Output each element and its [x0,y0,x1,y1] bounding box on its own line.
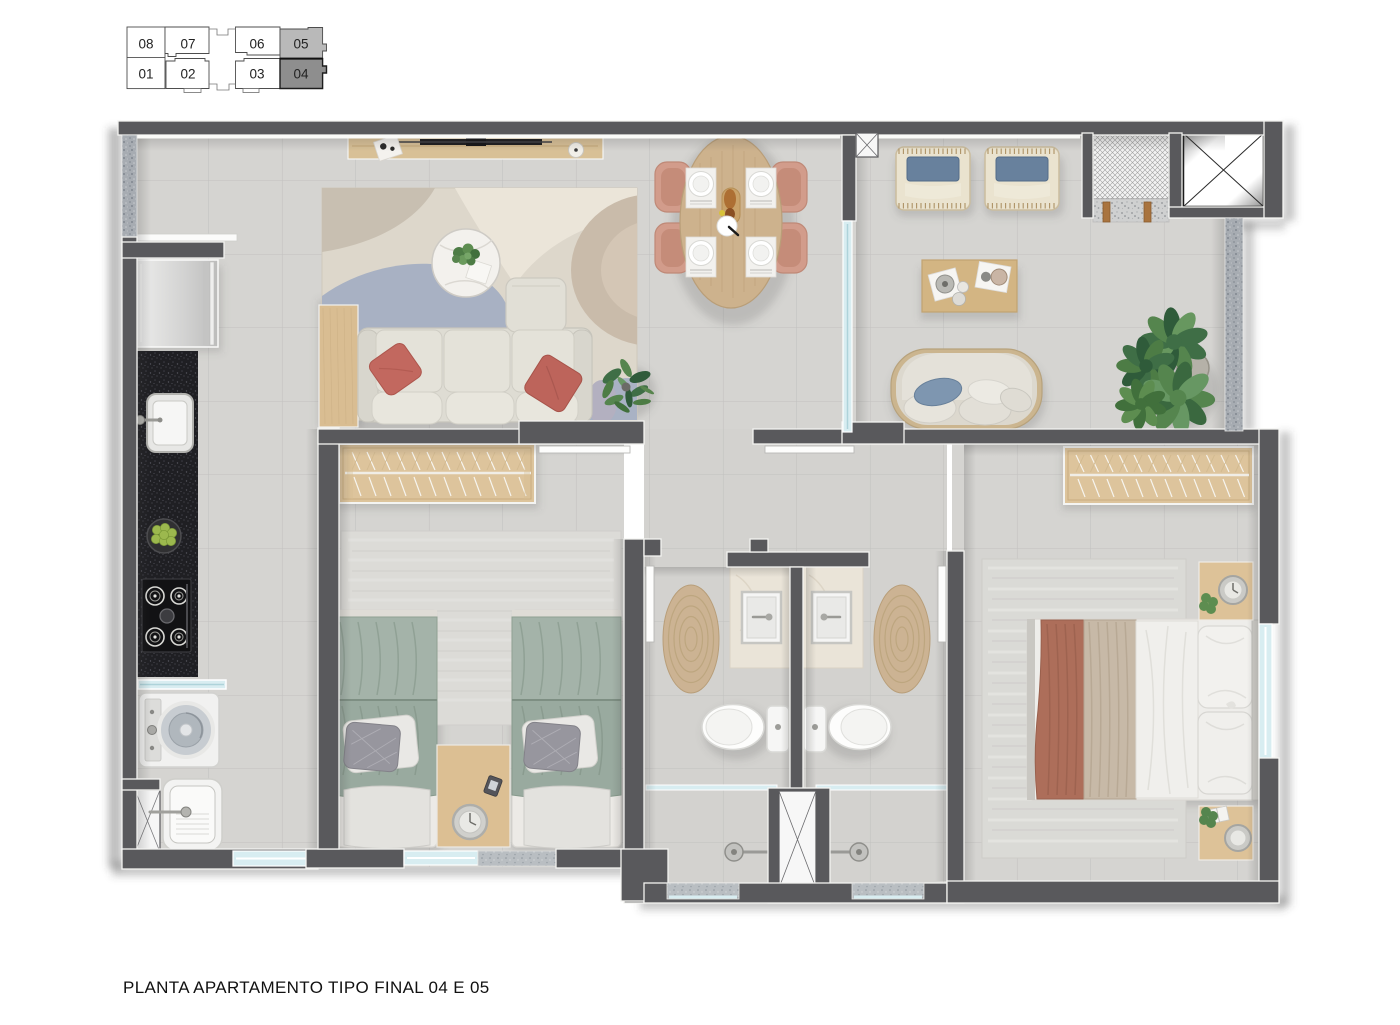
svg-text:04: 04 [293,67,309,82]
svg-text:07: 07 [180,37,195,52]
svg-text:PLANTA APARTAMENTO TIPO FINAL: PLANTA APARTAMENTO TIPO FINAL 04 E 05 [123,978,490,997]
svg-text:08: 08 [138,37,153,52]
svg-text:06: 06 [249,37,264,52]
svg-text:05: 05 [293,37,308,52]
svg-text:01: 01 [138,67,153,82]
svg-text:03: 03 [249,67,264,82]
svg-text:02: 02 [180,67,195,82]
